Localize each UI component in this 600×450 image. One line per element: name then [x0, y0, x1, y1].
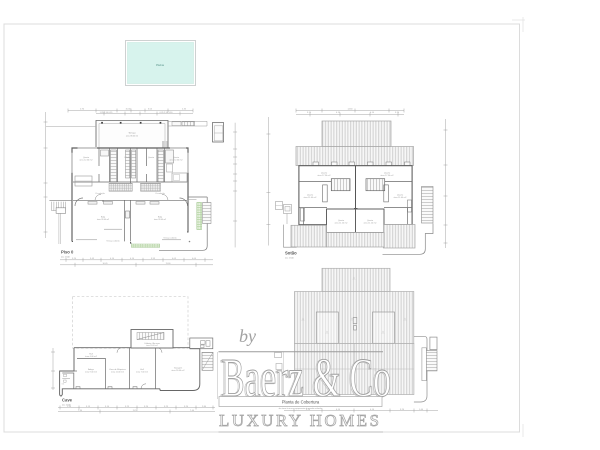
svg-text:área 28.00 m2: área 28.00 m2: [97, 218, 109, 221]
svg-text:by: by: [239, 326, 256, 346]
svg-text:Terraço coberto: Terraço coberto: [106, 240, 119, 243]
svg-text:área 12.50 m2: área 12.50 m2: [170, 160, 184, 162]
svg-text:10.45: 10.45: [102, 263, 108, 265]
svg-text:área 11.10 m2: área 11.10 m2: [364, 223, 378, 225]
svg-text:Quarto: Quarto: [83, 156, 90, 159]
svg-text:área 11.00 m2: área 11.00 m2: [394, 197, 408, 199]
svg-text:área 12.50 m2: área 12.50 m2: [80, 160, 94, 162]
svg-text:área 4.00 m2: área 4.00 m2: [85, 356, 98, 358]
svg-text:área 17.50 m2: área 17.50 m2: [381, 175, 395, 177]
svg-text:área 17.50 m2: área 17.50 m2: [318, 175, 332, 177]
svg-text:15.30: 15.30: [125, 109, 131, 111]
svg-text:área 26.00 m2: área 26.00 m2: [172, 370, 186, 372]
svg-text:área 38.00 m2: área 38.00 m2: [126, 134, 138, 137]
svg-text:Piso 0: Piso 0: [61, 250, 74, 255]
svg-text:área 13.00 m2: área 13.00 m2: [146, 345, 158, 347]
svg-text:área 9.00 m2: área 9.00 m2: [85, 372, 98, 374]
svg-text:0.35 2.90 1.30: 0.35 2.90 1.30: [160, 112, 174, 114]
svg-text:Terraço coberto: Terraço coberto: [163, 237, 176, 240]
svg-text:Quarto: Quarto: [148, 156, 155, 159]
svg-text:Quarto: Quarto: [173, 156, 180, 159]
svg-text:área 11.00 m2: área 11.00 m2: [111, 372, 125, 374]
svg-text:I.Sala: I.Sala: [124, 157, 130, 159]
svg-text:área 11.00 m2: área 11.00 m2: [304, 197, 318, 199]
svg-text:LUXURY HOMES: LUXURY HOMES: [219, 411, 382, 430]
svg-text:área 28.00 m2: área 28.00 m2: [154, 218, 166, 221]
svg-text:área 11.10 m2: área 11.10 m2: [335, 223, 349, 225]
svg-text:área 7.00 m2: área 7.00 m2: [136, 372, 149, 374]
svg-text:esc 1:100: esc 1:100: [285, 258, 295, 260]
svg-text:14.60: 14.60: [347, 109, 353, 111]
svg-text:Sotão: Sotão: [285, 251, 297, 256]
svg-text:Planta de Cobertura: Planta de Cobertura: [282, 399, 320, 404]
svg-text:Piscina: Piscina: [156, 64, 164, 67]
svg-text:1.35 2.90 0.35: 1.35 2.90 0.35: [100, 112, 114, 114]
svg-text:Cave: Cave: [62, 398, 73, 403]
svg-text:Terraço: Terraço: [128, 132, 136, 135]
svg-text:das áreas técnicas e equipamen: das áreas técnicas e equipamentos da mor…: [279, 407, 323, 410]
